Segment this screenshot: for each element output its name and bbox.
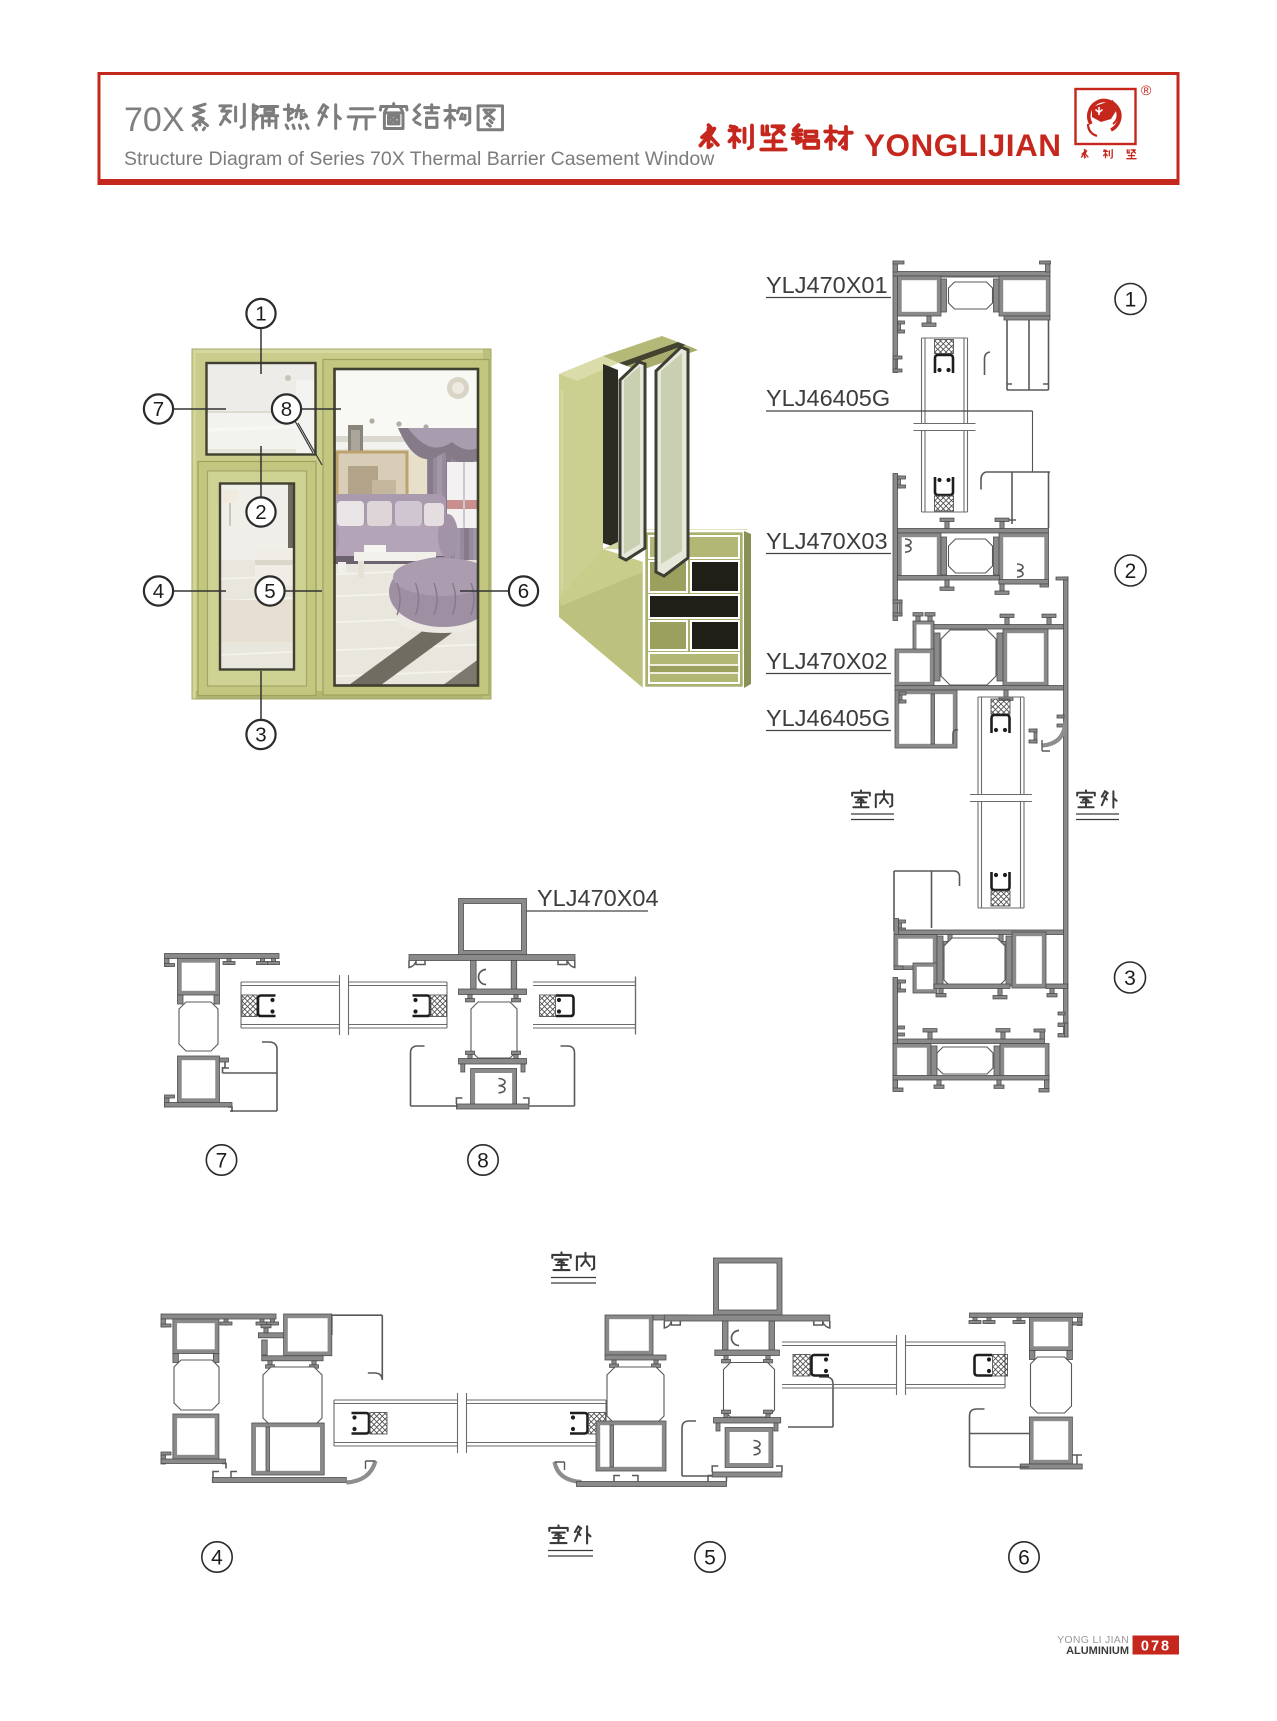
svg-text:3: 3 xyxy=(1124,967,1136,990)
svg-text:YLJ46405G: YLJ46405G xyxy=(766,385,890,411)
svg-text:7: 7 xyxy=(216,1149,228,1172)
svg-text:2: 2 xyxy=(1125,560,1137,583)
svg-text:Structure Diagram of Series 70: Structure Diagram of Series 70X Thermal … xyxy=(124,148,715,170)
svg-text:2: 2 xyxy=(255,501,266,524)
svg-text:5: 5 xyxy=(264,580,275,603)
svg-text:3: 3 xyxy=(255,724,266,747)
svg-text:078: 078 xyxy=(1141,1639,1171,1655)
svg-text:YLJ470X04: YLJ470X04 xyxy=(537,885,659,911)
svg-text:6: 6 xyxy=(1018,1546,1030,1569)
svg-text:®: ® xyxy=(1141,82,1152,98)
svg-text:1: 1 xyxy=(255,303,266,326)
svg-text:8: 8 xyxy=(281,398,292,421)
svg-text:7: 7 xyxy=(153,398,164,421)
svg-text:ALUMINIUM: ALUMINIUM xyxy=(1066,1645,1129,1657)
svg-text:1: 1 xyxy=(1125,288,1137,311)
svg-text:4: 4 xyxy=(211,1546,223,1569)
svg-text:YLJ46405G: YLJ46405G xyxy=(766,705,890,731)
svg-text:5: 5 xyxy=(704,1546,716,1569)
svg-text:YLJ470X01: YLJ470X01 xyxy=(766,272,888,298)
svg-text:YONGLIJIAN: YONGLIJIAN xyxy=(864,127,1062,163)
svg-text:4: 4 xyxy=(153,580,164,603)
svg-text:6: 6 xyxy=(518,580,529,603)
svg-text:8: 8 xyxy=(477,1149,489,1172)
svg-text:70X: 70X xyxy=(124,101,185,139)
svg-text:YLJ470X03: YLJ470X03 xyxy=(766,528,888,554)
svg-text:YLJ470X02: YLJ470X02 xyxy=(766,648,888,674)
